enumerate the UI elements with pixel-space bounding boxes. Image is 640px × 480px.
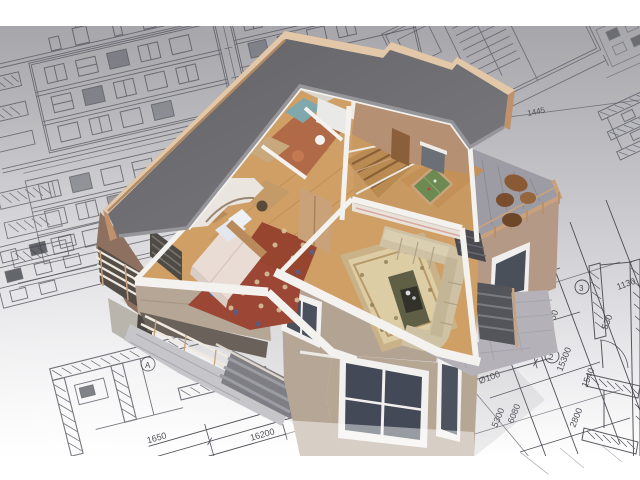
svg-text:2: 2	[549, 353, 554, 362]
svg-text:3: 3	[579, 284, 584, 293]
svg-text:A: A	[145, 361, 151, 370]
